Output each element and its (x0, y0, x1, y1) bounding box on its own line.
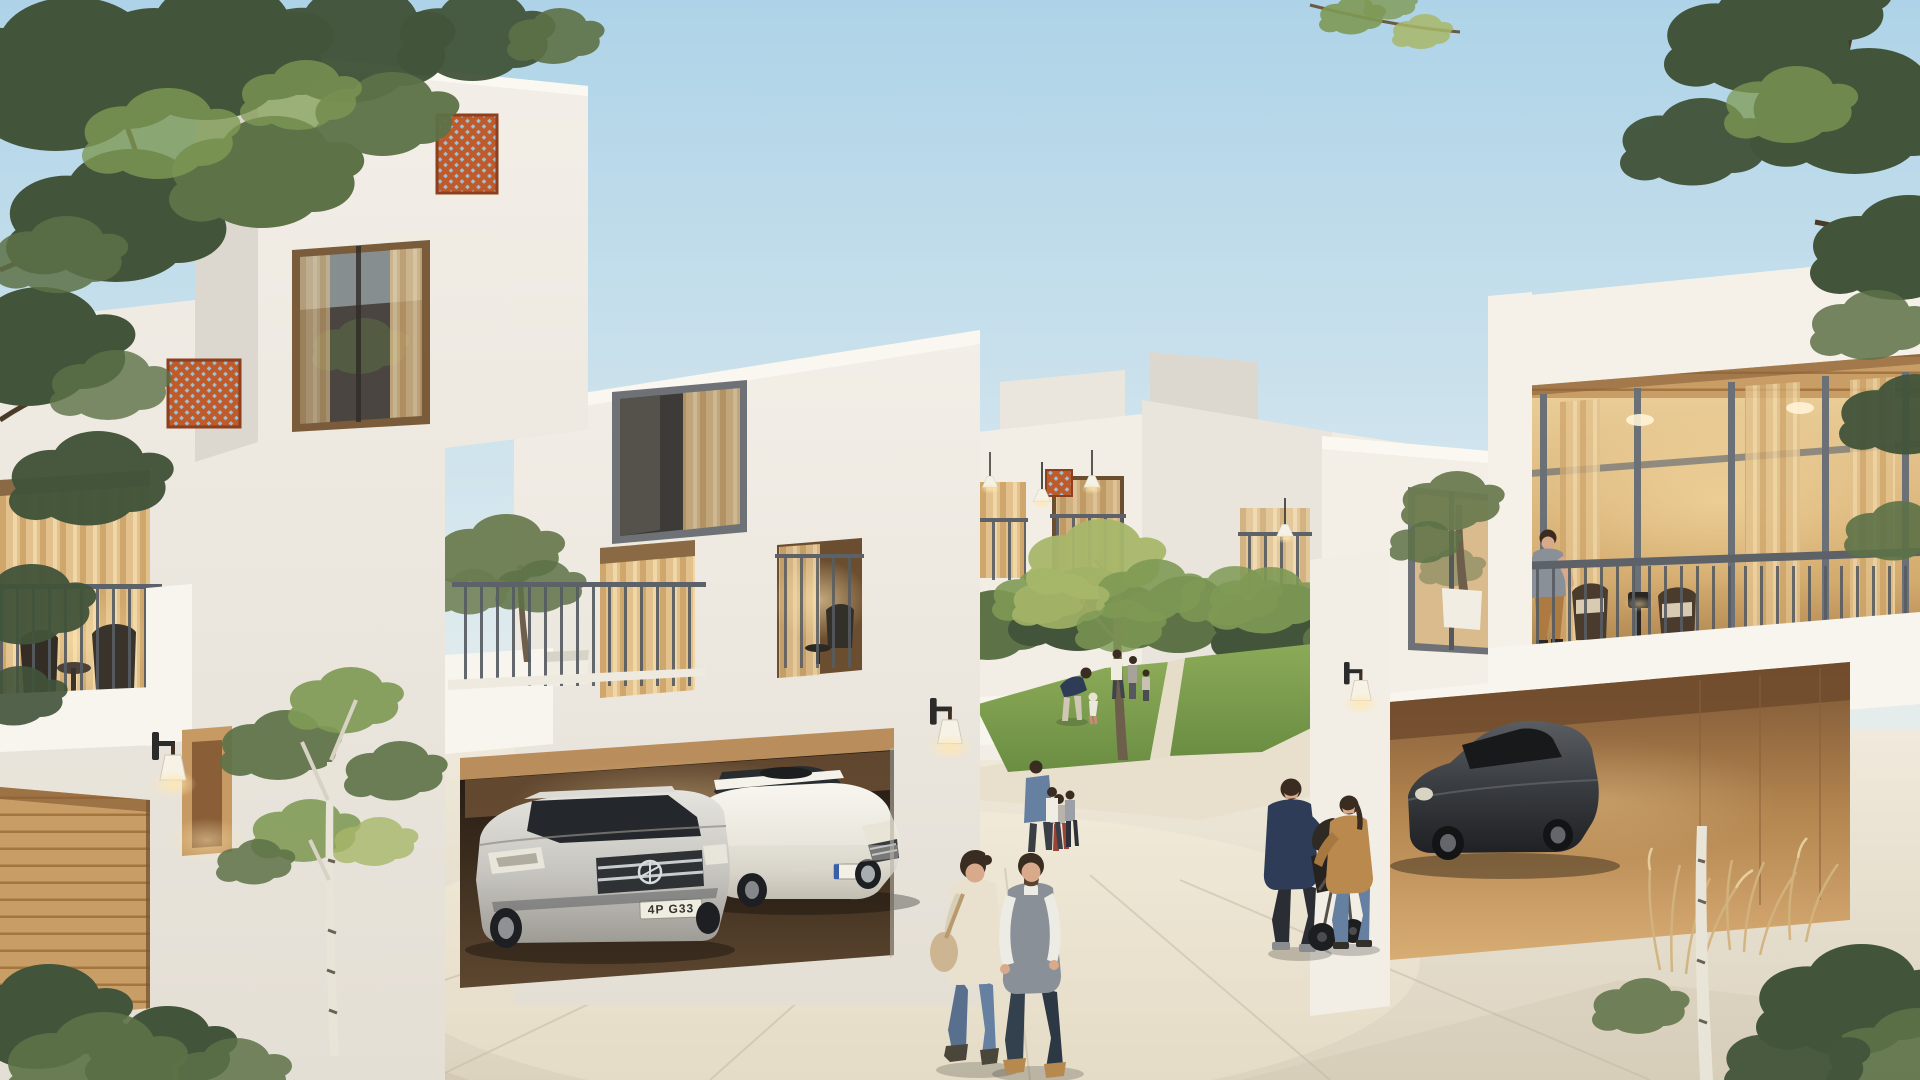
shoulder-bag (930, 932, 958, 972)
mercedes-car: 4P G33 (465, 786, 735, 964)
background-lattice-window (1046, 470, 1072, 496)
right-garage (1390, 662, 1850, 960)
render-canvas: 4P G33 (0, 0, 1920, 1080)
upper-window (612, 380, 747, 544)
architectural-rendering: 4P G33 (0, 0, 1920, 1080)
license-plate-text: 4P G33 (648, 901, 695, 917)
lattice-screen (168, 360, 240, 427)
picture-window (292, 240, 430, 432)
